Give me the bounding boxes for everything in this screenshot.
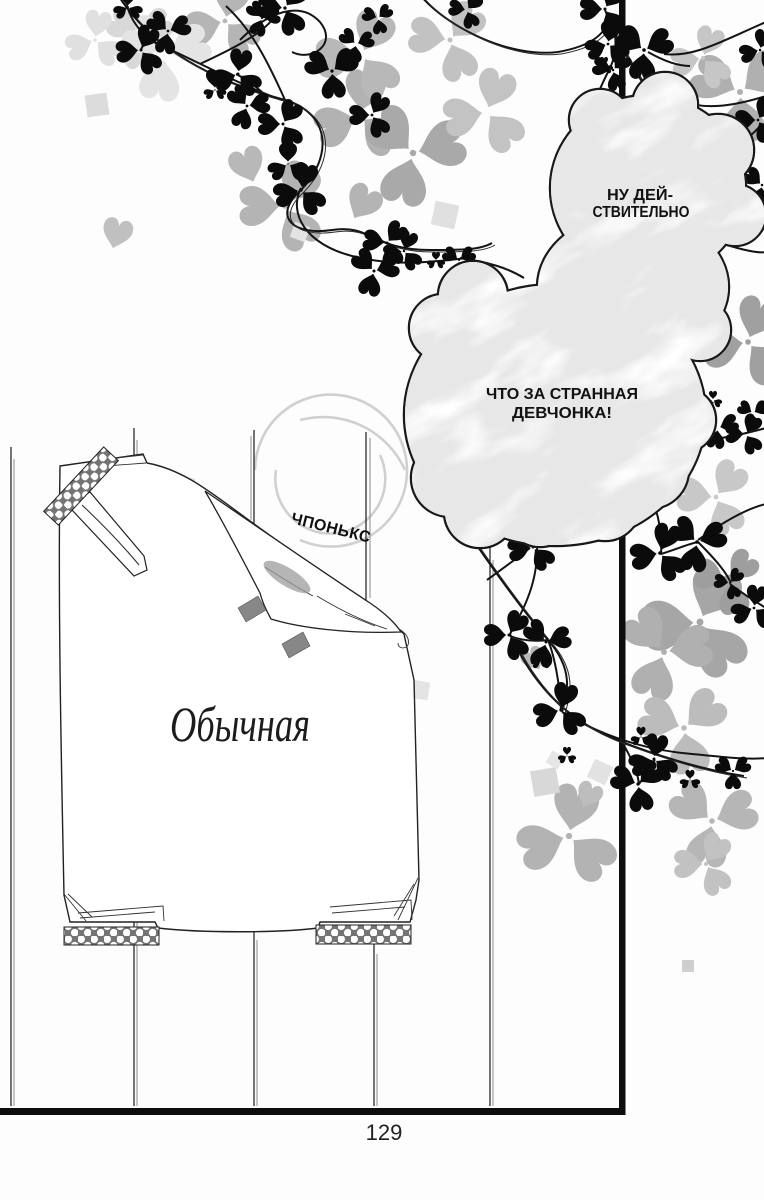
svg-text:СТВИТЕЛЬНО: СТВИТЕЛЬНО [593, 204, 690, 221]
svg-text:НУ ДЕЙ-: НУ ДЕЙ- [607, 185, 673, 204]
svg-text:ДЕВЧОНКА!: ДЕВЧОНКА! [512, 405, 612, 422]
svg-text:Обычная: Обычная [170, 696, 310, 752]
svg-text:129: 129 [366, 1120, 403, 1145]
svg-text:ЧТО ЗА СТРАННАЯ: ЧТО ЗА СТРАННАЯ [486, 386, 638, 403]
